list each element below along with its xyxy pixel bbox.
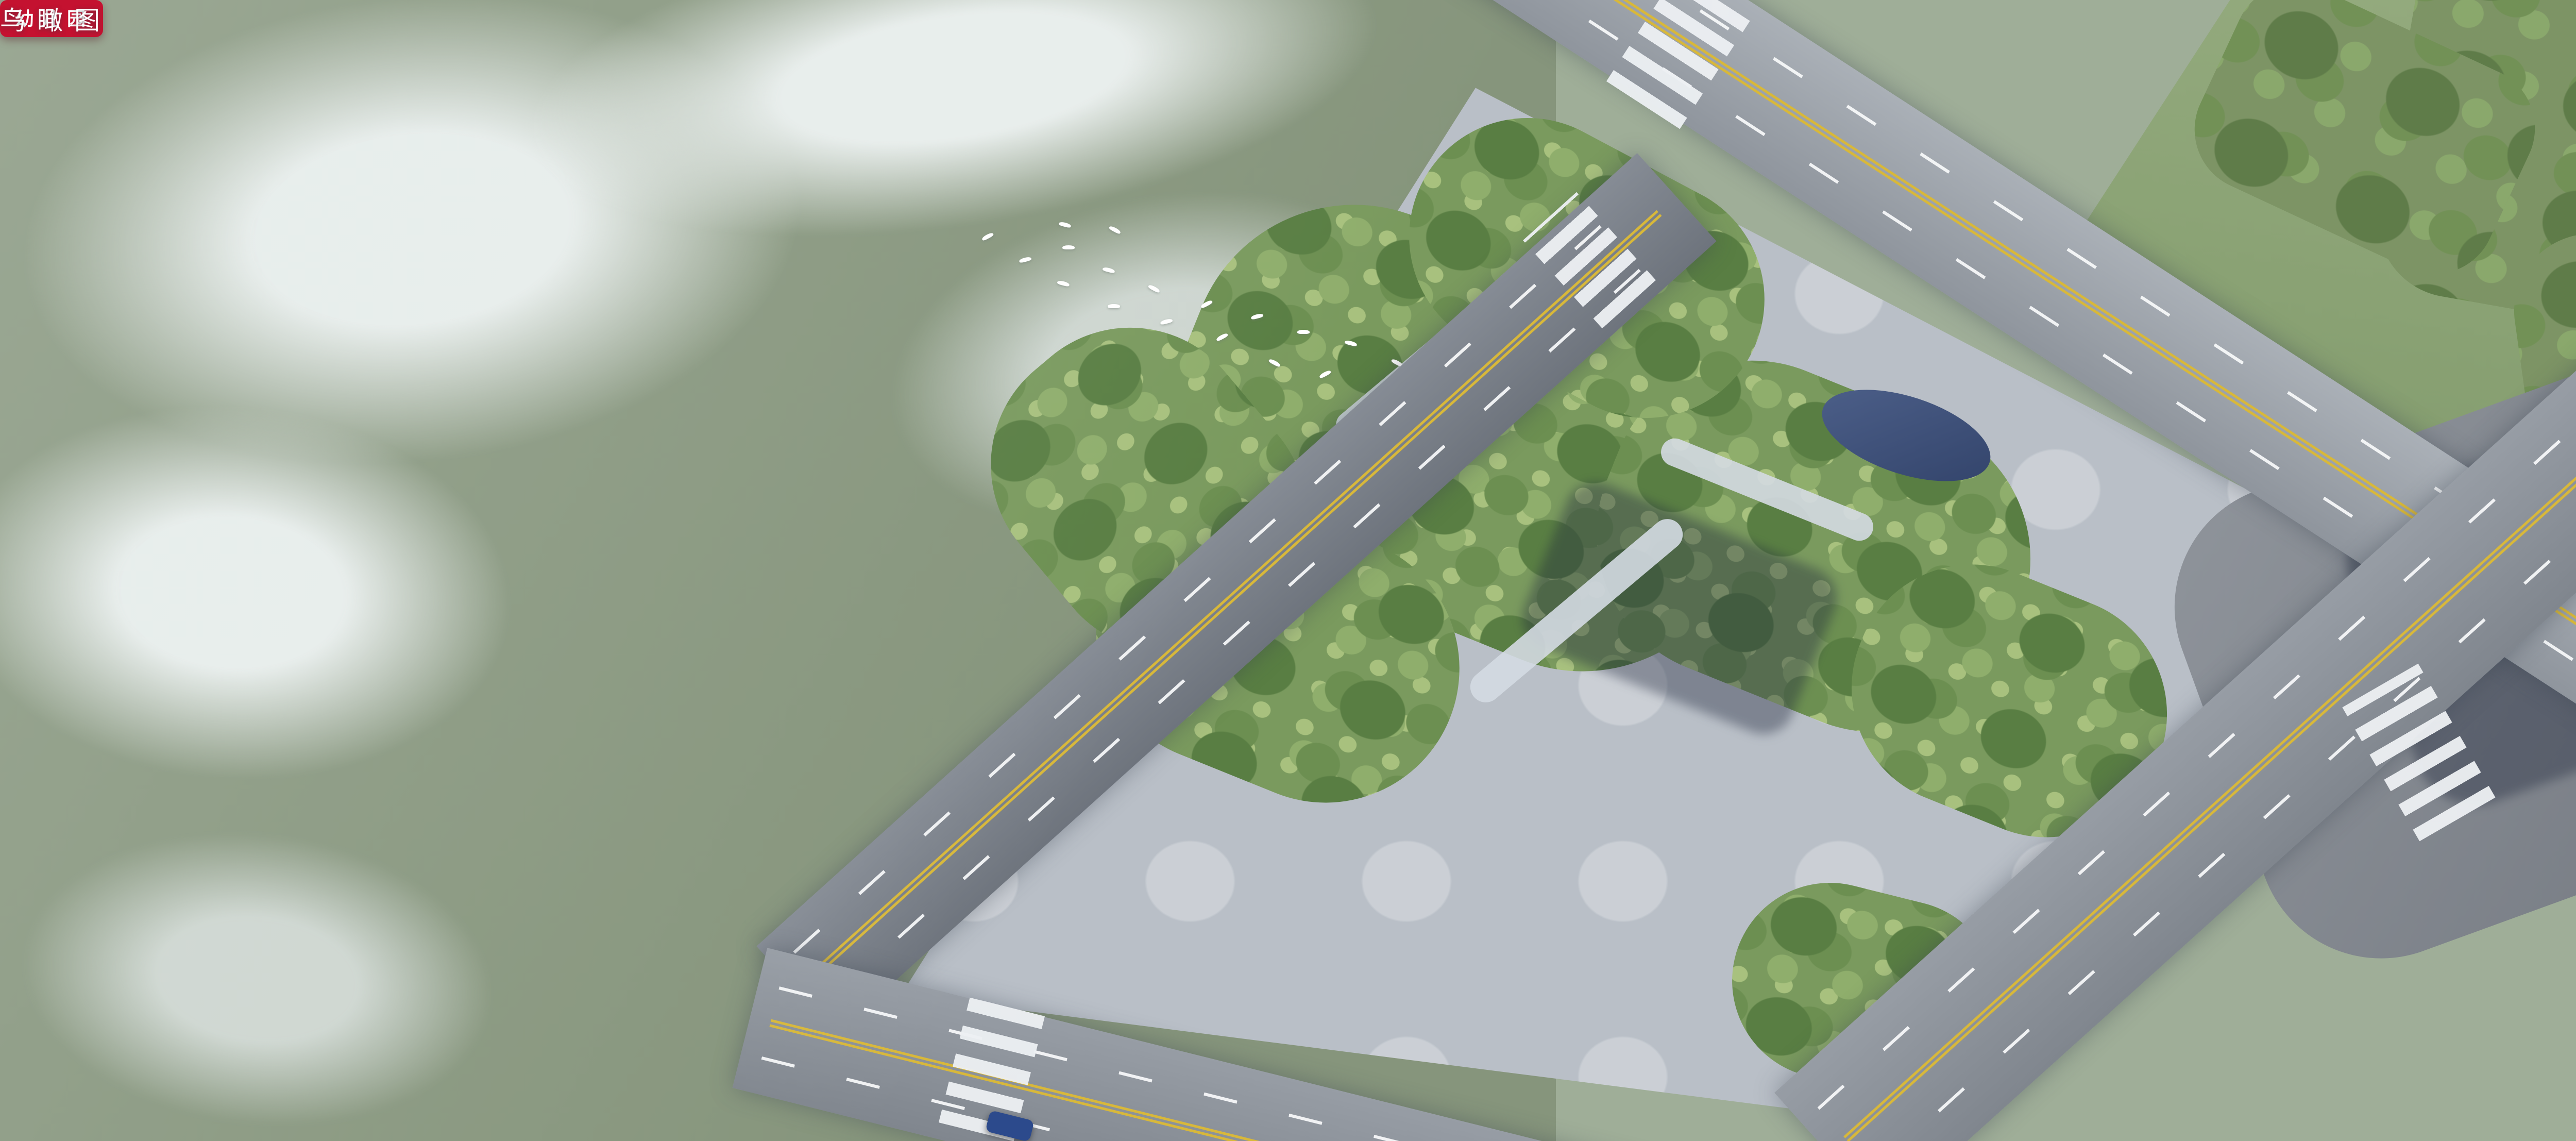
cloud	[0, 739, 612, 1141]
view-caption: 鸟瞰图	[0, 0, 111, 37]
flying-bird	[1108, 304, 1120, 308]
flying-bird	[1062, 245, 1075, 249]
flying-bird	[1297, 330, 1310, 334]
aerial-masterplan-rendering: 幼儿园 鸟瞰图	[0, 0, 2576, 1141]
